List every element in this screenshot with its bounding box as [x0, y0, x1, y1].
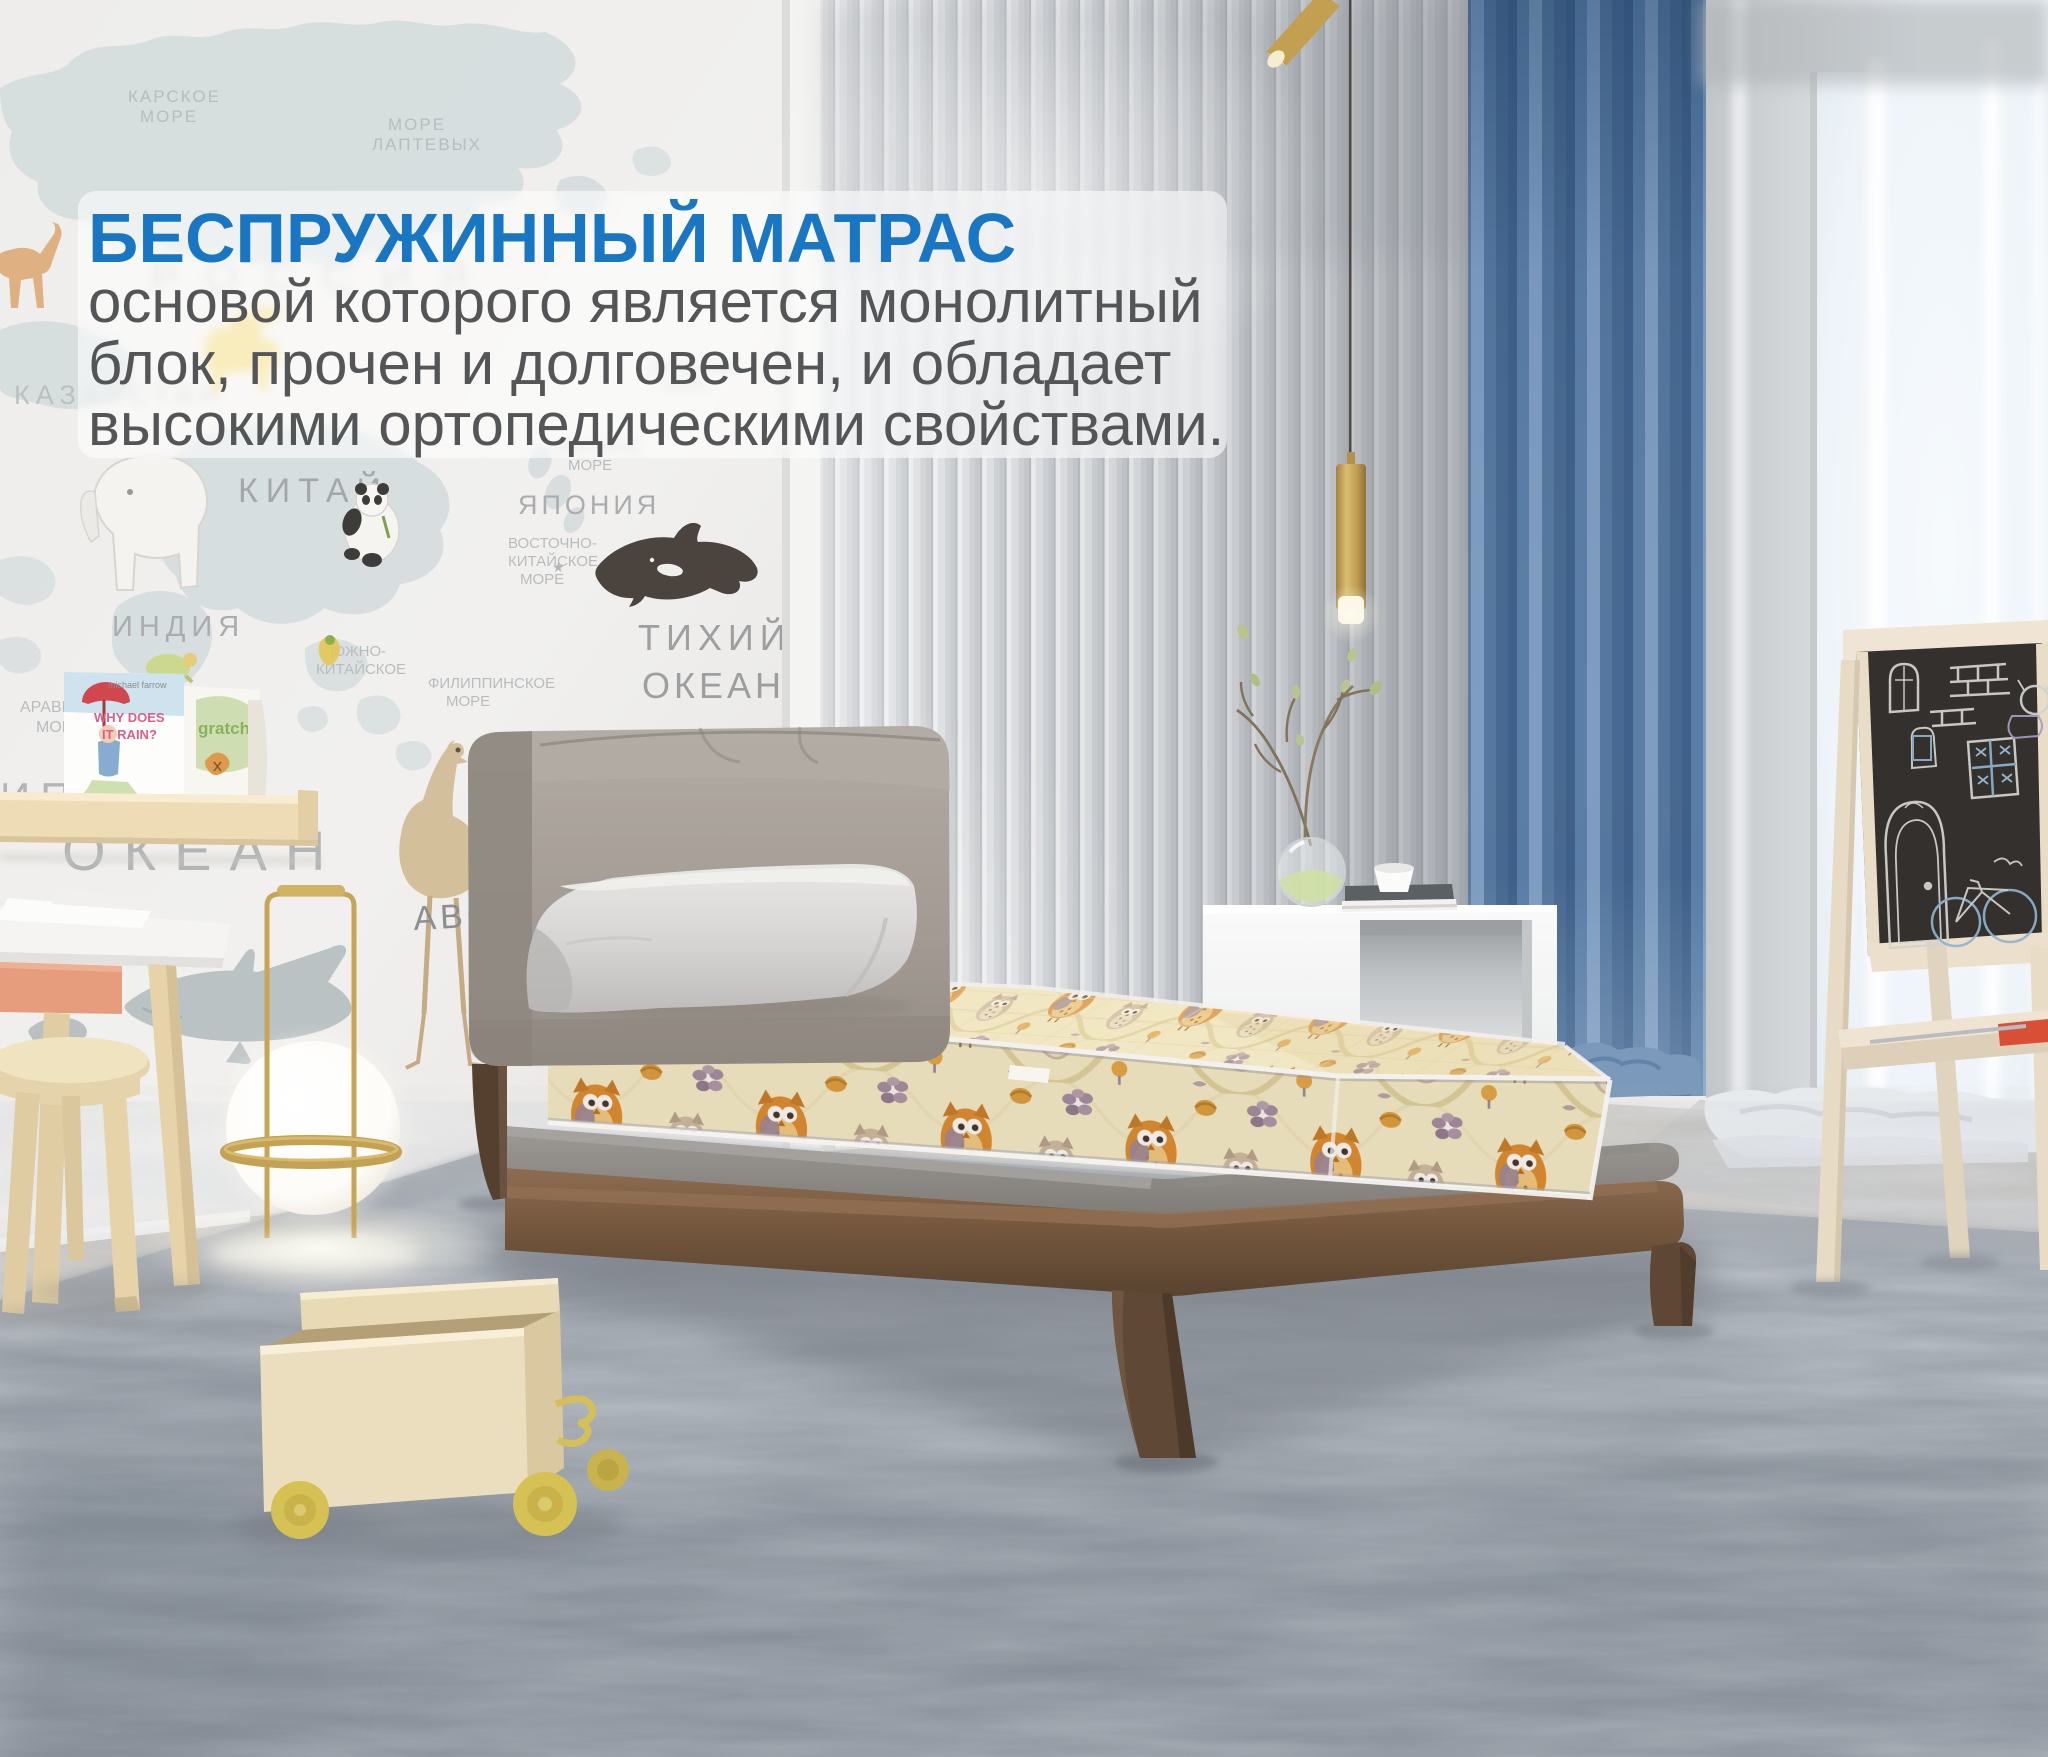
svg-text:ФИЛИППИНСКОЕ: ФИЛИППИНСКОЕ — [428, 675, 555, 692]
svg-text:WHY DOES: WHY DOES — [94, 710, 165, 725]
svg-text:ОКЕАН: ОКЕАН — [642, 665, 785, 706]
svg-text:ВОСТОЧНО-: ВОСТОЧНО- — [508, 535, 597, 552]
svg-text:МОРЕ: МОРЕ — [140, 107, 198, 126]
svg-text:МОРЕ: МОРЕ — [388, 115, 446, 134]
svg-text:МОРЕ: МОРЕ — [446, 693, 490, 710]
svg-text:КАРСКОЕ: КАРСКОЕ — [128, 87, 221, 106]
svg-text:МОРЕ: МОРЕ — [568, 457, 612, 474]
svg-text:ИНДИЯ: ИНДИЯ — [112, 611, 245, 643]
svg-text:★: ★ — [552, 559, 565, 575]
svg-text:ТИХИЙ: ТИХИЙ — [638, 616, 792, 658]
svg-text:michael farrow: michael farrow — [108, 680, 167, 690]
svg-text:ЛАПТЕВЫХ: ЛАПТЕВЫХ — [372, 135, 482, 154]
svg-text:IT RAIN?: IT RAIN? — [102, 727, 157, 742]
svg-text:ЯПОНИЯ: ЯПОНИЯ — [518, 490, 660, 520]
svg-text:gratch: gratch — [198, 719, 250, 738]
